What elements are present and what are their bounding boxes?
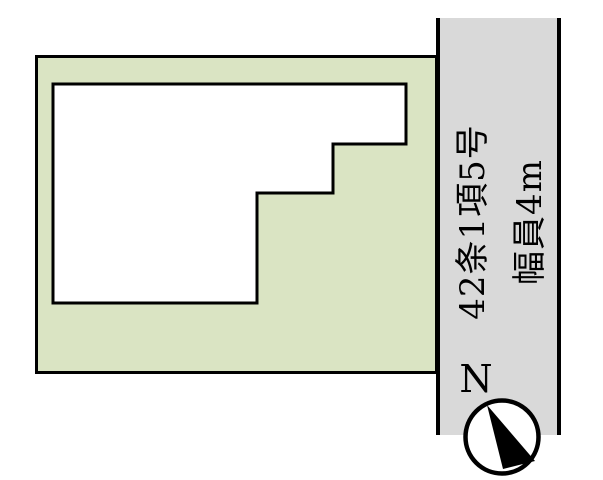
road-width-label: 幅員4m	[510, 159, 550, 285]
north-label: N	[459, 357, 492, 401]
plot-diagram-canvas: 42条1項5号 幅員4m N	[0, 0, 603, 480]
road-designation-label: 42条1項5号	[453, 124, 493, 320]
plot-diagram: 42条1項5号 幅員4m N	[0, 0, 603, 480]
